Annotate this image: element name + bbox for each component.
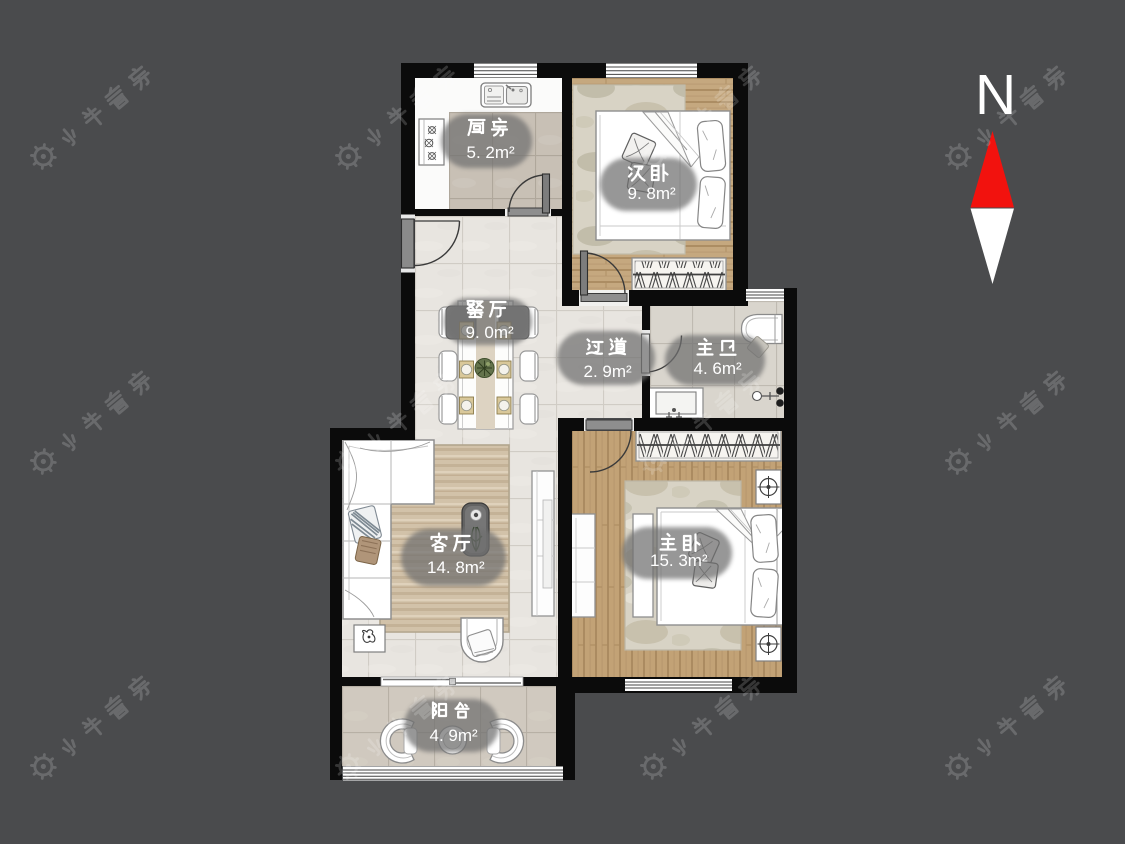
svg-text:14. 8m²: 14. 8m² bbox=[427, 558, 485, 577]
svg-text:4. 6m²: 4. 6m² bbox=[694, 359, 743, 378]
svg-text:15. 3m²: 15. 3m² bbox=[650, 551, 708, 570]
svg-text:9. 0m²: 9. 0m² bbox=[466, 323, 515, 342]
svg-text:5. 2m²: 5. 2m² bbox=[467, 143, 516, 162]
svg-text:2. 9m²: 2. 9m² bbox=[584, 362, 633, 381]
svg-text:4. 9m²: 4. 9m² bbox=[430, 726, 479, 745]
svg-text:9. 8m²: 9. 8m² bbox=[628, 184, 677, 203]
